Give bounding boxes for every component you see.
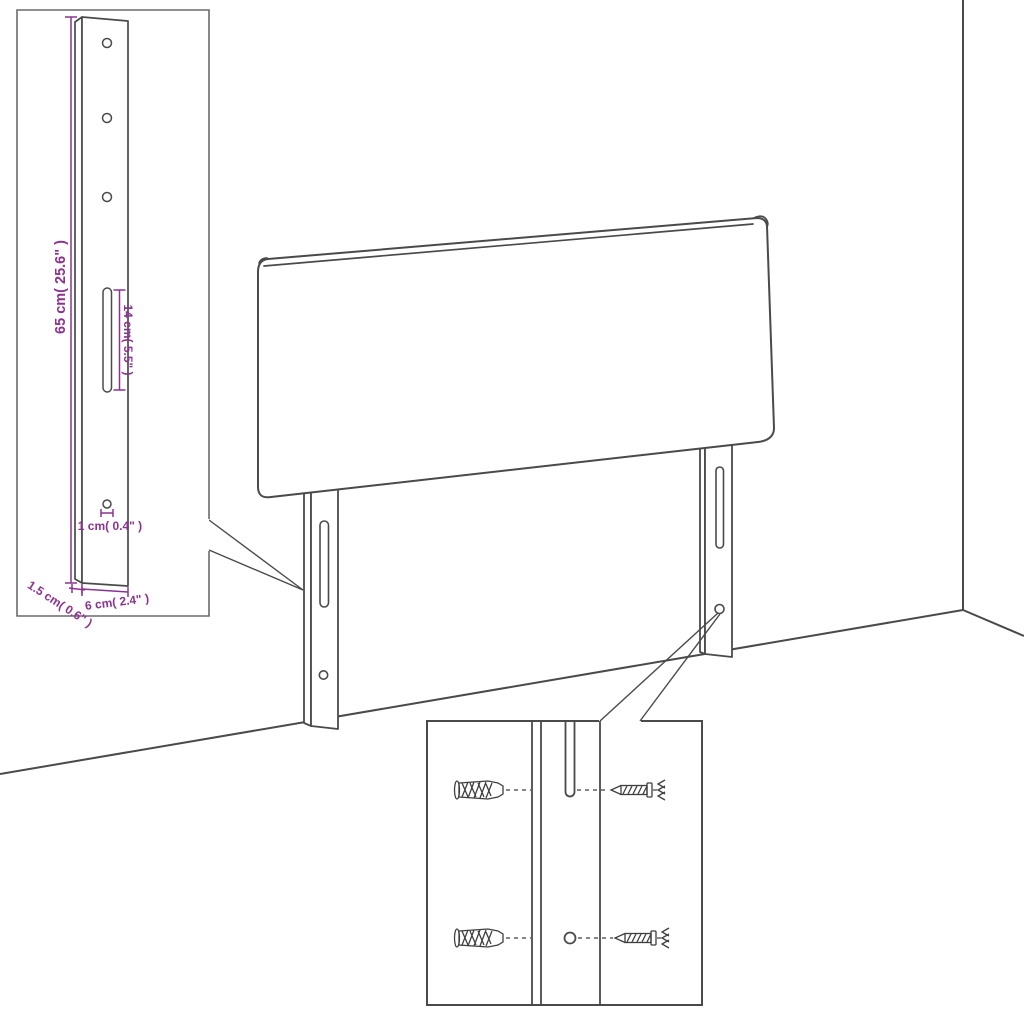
leg-detail-inset: 65 cm( 25.6" ) 14 cm( 5.5" ) 1 cm( 0.4" … [17, 10, 209, 630]
inset-background [427, 721, 702, 1005]
label-leg-height: 65 cm( 25.6" ) [53, 240, 69, 334]
assembly-diagram: 65 cm( 25.6" ) 14 cm( 5.5" ) 1 cm( 0.4" … [0, 0, 1024, 1024]
detail-leg-side-face [75, 17, 82, 583]
floor-line-right [963, 610, 1024, 636]
callout-line [209, 520, 303, 590]
callout-line [209, 550, 303, 590]
callout-wedge-left [209, 520, 303, 590]
left-leg-front-face [311, 480, 338, 729]
headboard-panel [258, 216, 774, 497]
right-leg-front-face [705, 442, 732, 657]
diagram-canvas: 65 cm( 25.6" ) 14 cm( 5.5" ) 1 cm( 0.4" … [0, 0, 1024, 1024]
callout-line [600, 613, 718, 721]
left-leg-side-face [304, 480, 311, 726]
label-slot-length: 14 cm( 5.5" ) [121, 304, 135, 375]
left-leg [304, 480, 338, 729]
label-hole-diameter: 1 cm( 0.4" ) [78, 519, 142, 533]
callout-line [640, 614, 720, 721]
mounting-detail-inset [427, 721, 702, 1005]
